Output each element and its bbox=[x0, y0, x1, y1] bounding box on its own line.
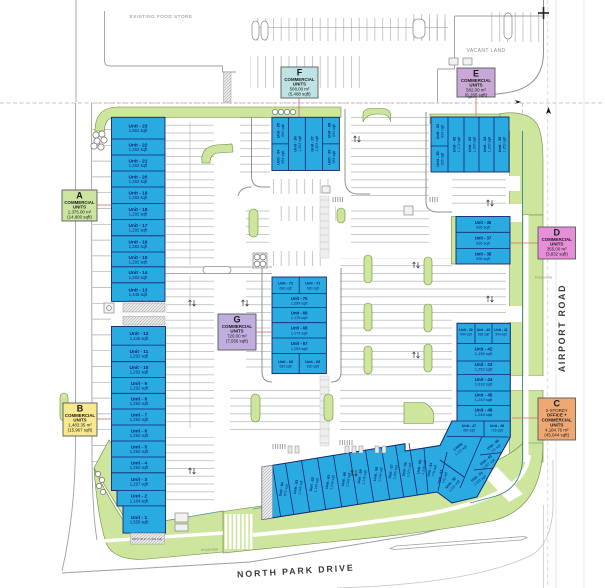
svg-text:1,292 sqft: 1,292 sqft bbox=[130, 465, 149, 470]
svg-text:1,018 sqft: 1,018 sqft bbox=[475, 382, 493, 387]
svg-text:Unit - 66: Unit - 66 bbox=[278, 360, 293, 364]
svg-text:1,292 sqft: 1,292 sqft bbox=[130, 353, 149, 358]
svg-text:1,292 sqft: 1,292 sqft bbox=[130, 401, 149, 406]
svg-text:Unit - 36: Unit - 36 bbox=[475, 220, 492, 225]
svg-text:1,292 sqft: 1,292 sqft bbox=[129, 228, 148, 233]
svg-text:694 sqft: 694 sqft bbox=[281, 124, 285, 136]
svg-text:1,292 sqft: 1,292 sqft bbox=[129, 179, 148, 184]
svg-text:Unit - 25: Unit - 25 bbox=[276, 122, 281, 138]
svg-text:694 sqft: 694 sqft bbox=[332, 151, 336, 163]
svg-text:626 sqft: 626 sqft bbox=[441, 153, 445, 165]
svg-text:1,253 sqft: 1,253 sqft bbox=[488, 137, 492, 152]
svg-text:1,172 sqft: 1,172 sqft bbox=[457, 137, 461, 152]
svg-text:Unit - 24: Unit - 24 bbox=[276, 149, 281, 165]
svg-text:Unit - 39: Unit - 39 bbox=[459, 328, 472, 332]
svg-text:Unit - 68: Unit - 68 bbox=[291, 326, 308, 331]
svg-text:1,292 sqft: 1,292 sqft bbox=[130, 449, 149, 454]
svg-text:1,305 sqft: 1,305 sqft bbox=[473, 137, 477, 152]
svg-text:Unit - 41: Unit - 41 bbox=[494, 328, 507, 332]
svg-text:PATIO 30.47 m² (362 sqft): PATIO 30.47 m² (362 sqft) bbox=[132, 537, 162, 541]
svg-text:630 sqft: 630 sqft bbox=[307, 286, 319, 290]
svg-text:715 sqft: 715 sqft bbox=[491, 429, 503, 433]
svg-text:Unit - 67: Unit - 67 bbox=[291, 341, 308, 346]
svg-text:1,302 sqft: 1,302 sqft bbox=[298, 136, 302, 151]
svg-text:694 sqft: 694 sqft bbox=[332, 124, 336, 136]
svg-text:1,292 sqft: 1,292 sqft bbox=[129, 259, 148, 264]
svg-text:1,175 sqft: 1,175 sqft bbox=[291, 316, 309, 320]
svg-text:1,259 sqft: 1,259 sqft bbox=[291, 347, 309, 351]
svg-text:630 sqft: 630 sqft bbox=[476, 257, 490, 261]
svg-text:1,248 sqft: 1,248 sqft bbox=[475, 412, 493, 417]
svg-text:(14,800 sqft): (14,800 sqft) bbox=[67, 215, 92, 220]
svg-text:1,252 sqft: 1,252 sqft bbox=[475, 367, 493, 372]
svg-text:1,297 sqft: 1,297 sqft bbox=[130, 482, 149, 487]
svg-text:630 sqft: 630 sqft bbox=[476, 225, 490, 229]
svg-text:Unit - 32: Unit - 32 bbox=[451, 136, 456, 152]
svg-text:Unit - 35: Unit - 35 bbox=[497, 136, 502, 152]
svg-text:630 sqft: 630 sqft bbox=[476, 241, 490, 245]
svg-text:Unit - 65: Unit - 65 bbox=[305, 360, 320, 364]
svg-text:1,292 sqft: 1,292 sqft bbox=[129, 195, 148, 200]
svg-text:1,195 sqft: 1,195 sqft bbox=[475, 351, 493, 356]
svg-text:Unit - 31: Unit - 31 bbox=[435, 123, 440, 139]
svg-text:1,292 sqft: 1,292 sqft bbox=[130, 385, 149, 390]
svg-text:1,292 sqft: 1,292 sqft bbox=[129, 163, 148, 168]
svg-text:Unit - 37: Unit - 37 bbox=[475, 236, 492, 241]
svg-text:1,249 sqft: 1,249 sqft bbox=[475, 397, 493, 402]
svg-text:1,558 sqft: 1,558 sqft bbox=[130, 520, 149, 525]
svg-text:1,445 sqft: 1,445 sqft bbox=[130, 336, 149, 341]
svg-text:Unit - 48: Unit - 48 bbox=[490, 424, 504, 428]
svg-text:630 sqft: 630 sqft bbox=[280, 286, 292, 290]
svg-text:Unit - 40: Unit - 40 bbox=[477, 328, 490, 332]
svg-text:694 sqft: 694 sqft bbox=[281, 151, 285, 163]
svg-text:1,259 sqft: 1,259 sqft bbox=[291, 302, 309, 306]
svg-text:1,253 sqft: 1,253 sqft bbox=[503, 137, 507, 152]
svg-text:Unit - 47: Unit - 47 bbox=[462, 424, 476, 428]
svg-text:536 sqft: 536 sqft bbox=[478, 333, 489, 337]
svg-text:Unit - 29: Unit - 29 bbox=[326, 149, 331, 165]
svg-text:Unit - 71: Unit - 71 bbox=[305, 282, 320, 286]
svg-text:1,292 sqft: 1,292 sqft bbox=[129, 244, 148, 249]
svg-text:630 sqft: 630 sqft bbox=[280, 365, 292, 369]
svg-text:1,175 sqft: 1,175 sqft bbox=[291, 331, 309, 335]
svg-text:Unit - 72: Unit - 72 bbox=[278, 282, 293, 286]
svg-text:630 sqft: 630 sqft bbox=[307, 365, 319, 369]
svg-text:Unit - 27: Unit - 27 bbox=[309, 136, 314, 151]
svg-text:1,292 sqft: 1,292 sqft bbox=[129, 147, 148, 152]
svg-text:544 sqft: 544 sqft bbox=[495, 333, 506, 337]
svg-text:1,164 sqft: 1,164 sqft bbox=[130, 498, 149, 503]
svg-text:(6,265 sqft): (6,265 sqft) bbox=[465, 93, 488, 98]
svg-text:544 sqft: 544 sqft bbox=[460, 333, 471, 337]
svg-text:Unit - 69: Unit - 69 bbox=[291, 311, 308, 316]
svg-text:1,292 sqft: 1,292 sqft bbox=[130, 370, 149, 375]
svg-text:AIRPORT ROAD: AIRPORT ROAD bbox=[557, 284, 567, 372]
svg-text:Unit - 34: Unit - 34 bbox=[482, 136, 487, 152]
svg-text:VACANT LAND: VACANT LAND bbox=[467, 48, 506, 54]
svg-text:EXISTING FOOD STORE: EXISTING FOOD STORE bbox=[130, 14, 193, 20]
svg-text:(3,832 sqft): (3,832 sqft) bbox=[546, 252, 569, 257]
svg-text:(7,556 sqft): (7,556 sqft) bbox=[226, 339, 249, 344]
svg-text:1,292 sqft: 1,292 sqft bbox=[130, 433, 149, 438]
svg-text:1,292 sqft: 1,292 sqft bbox=[129, 212, 148, 217]
svg-text:Unit - 33: Unit - 33 bbox=[467, 136, 472, 152]
svg-text:PATIO 30.25 m² (326 sqft): PATIO 30.25 m² (326 sqft) bbox=[129, 299, 159, 303]
svg-text:PYLON SIGN: PYLON SIGN bbox=[535, 276, 552, 280]
svg-text:(5,468 sqft): (5,468 sqft) bbox=[288, 92, 311, 97]
svg-text:Unit - 38: Unit - 38 bbox=[475, 252, 492, 257]
svg-text:624 sqft: 624 sqft bbox=[441, 125, 445, 137]
svg-text:1,302 sqft: 1,302 sqft bbox=[315, 136, 319, 151]
svg-text:Unit - 26: Unit - 26 bbox=[292, 135, 297, 151]
svg-text:1,292 sqft: 1,292 sqft bbox=[130, 417, 149, 422]
svg-text:1,561 sqft: 1,561 sqft bbox=[129, 128, 148, 133]
svg-text:(45,044 sqft): (45,044 sqft) bbox=[544, 432, 569, 437]
svg-text:Unit - 30: Unit - 30 bbox=[435, 151, 440, 166]
svg-text:1,292 sqft: 1,292 sqft bbox=[129, 275, 148, 280]
svg-text:(15,967 sqft): (15,967 sqft) bbox=[68, 428, 93, 433]
svg-text:1,445 sqft: 1,445 sqft bbox=[129, 292, 148, 297]
svg-text:957 sqft: 957 sqft bbox=[463, 429, 475, 433]
svg-text:Unit - 28: Unit - 28 bbox=[326, 122, 331, 138]
svg-text:Unit - 70: Unit - 70 bbox=[291, 296, 308, 301]
